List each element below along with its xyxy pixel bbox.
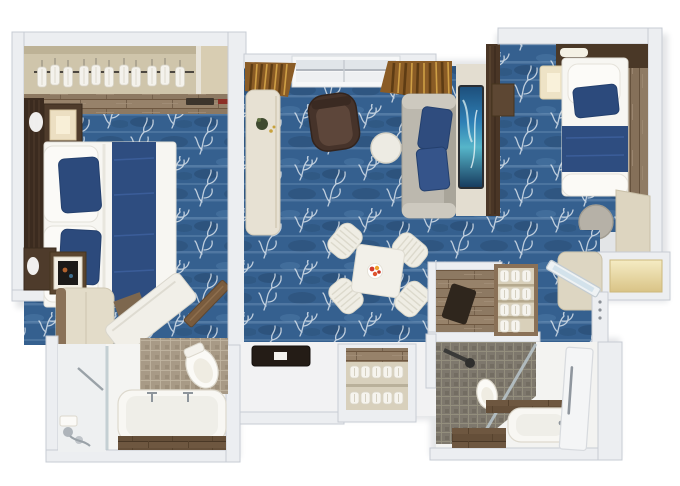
wardrobe-closet <box>24 46 234 94</box>
second-bed <box>562 58 628 196</box>
room-second-bathroom <box>426 334 622 460</box>
dark-console-table <box>252 346 310 366</box>
vanity-desk <box>616 190 650 260</box>
room-master-bathroom <box>46 336 240 462</box>
bathroom-wood-floor <box>452 428 506 448</box>
navy-bed-runner <box>562 126 628 172</box>
ceiling-light <box>560 48 588 57</box>
room-entry-hall <box>236 342 436 424</box>
lit-wall-niche <box>610 260 662 292</box>
dark-wood-wall <box>486 44 500 216</box>
wall-tv <box>459 86 483 188</box>
shoe-slipper-shelf <box>338 344 416 422</box>
storage-shelf-unit <box>494 264 538 336</box>
round-side-table <box>371 133 401 163</box>
tub-wood-shelf <box>118 436 226 450</box>
desk-accessory <box>269 129 273 133</box>
tv-screen <box>58 261 78 285</box>
navy-pillow <box>58 157 102 214</box>
navy-sofa-pillow <box>417 106 453 152</box>
brown-armchair <box>306 91 361 153</box>
bathtub <box>118 390 226 450</box>
navy-bed-runner <box>112 142 156 307</box>
walk-in-shower <box>58 344 107 452</box>
floorplan-image <box>0 0 680 486</box>
writing-desk <box>246 90 280 235</box>
navy-sofa-pillow <box>416 147 450 192</box>
room-master-bedroom <box>12 32 238 356</box>
wall-master-living <box>228 32 246 348</box>
gray-sofa <box>402 94 456 218</box>
cream-wardrobe <box>56 288 114 350</box>
remote-tray <box>186 98 214 105</box>
wall-cabinet <box>492 84 514 116</box>
wall-sconce <box>29 112 43 132</box>
navy-pillow <box>573 84 620 118</box>
wall-sconce <box>27 257 39 275</box>
